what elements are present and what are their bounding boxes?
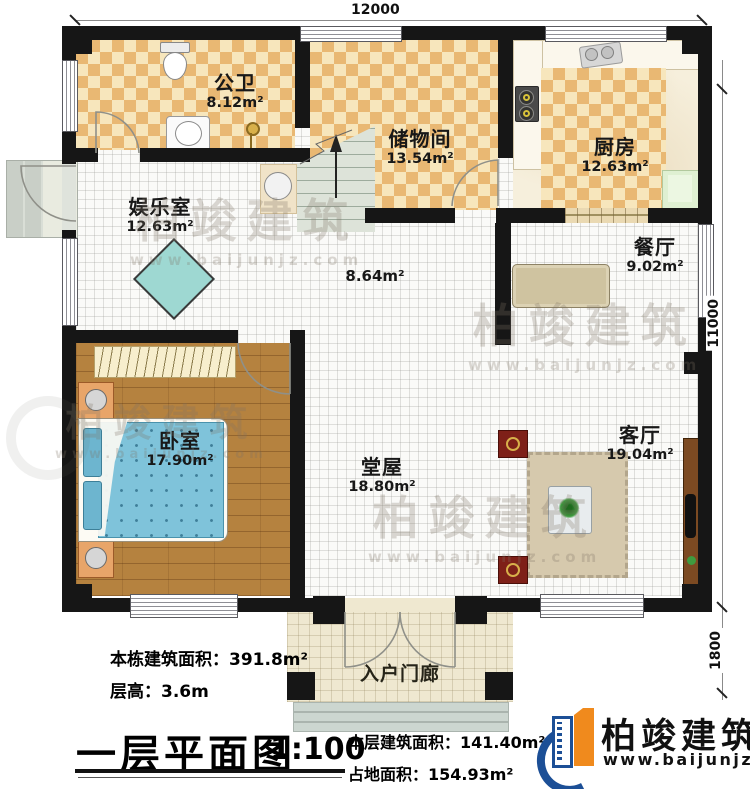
- footprint-area-note: 占地面积：154.93m²: [348, 761, 513, 785]
- floor-plan-canvas: 12000 11000 1800 公卫 8.12m² 储物间 13.54m² 厨…: [0, 0, 750, 789]
- room-label-dining: 餐厅 9.02m²: [600, 236, 710, 276]
- title-underline-thick: [75, 769, 345, 773]
- dimension-label-top: 12000: [348, 2, 403, 18]
- watermark-ring: [6, 396, 90, 480]
- title-underline-thin: [78, 777, 342, 778]
- dimension-label-porch: 1800: [708, 628, 724, 673]
- building-total-area-note: 本栋建筑面积：391.8m²: [110, 645, 308, 670]
- room-label-entry-porch: 入户门廊: [345, 664, 455, 686]
- stairs-direction-arrow: [300, 130, 352, 198]
- door-arc-bathroom: [96, 112, 139, 153]
- door-arc-entry-left: [345, 612, 400, 667]
- room-label-storage: 储物间 13.54m²: [365, 128, 475, 168]
- door-arc-side-porch: [21, 166, 76, 221]
- logo-building-windows: [557, 722, 562, 760]
- room-label-kitchen: 厨房 12.63m²: [560, 136, 670, 176]
- logo-building-orange: [574, 708, 594, 766]
- dimension-label-right: 11000: [706, 296, 722, 351]
- room-label-main-hall: 堂屋 18.80m²: [332, 456, 432, 496]
- brand-logo-icon: [537, 702, 597, 786]
- room-label-public-bath: 公卫 8.12m²: [185, 72, 285, 112]
- floor-area-note: 本层建筑面积：141.40m²: [348, 729, 545, 753]
- door-arc-bedroom: [238, 343, 290, 394]
- brand-logo: 柏竣建筑 www.baijunjz.com: [535, 700, 745, 788]
- hallway-area-label: 8.64m²: [330, 268, 420, 285]
- brand-website: www.baijunjz.com: [603, 750, 750, 769]
- room-label-bedroom: 卧室 17.90m²: [130, 430, 230, 470]
- room-label-living-room: 客厅 19.04m²: [590, 424, 690, 464]
- floor-height-note: 层高：3.6m: [110, 677, 209, 702]
- door-arc-entry-right: [400, 612, 455, 667]
- room-label-entertainment: 娱乐室 12.63m²: [110, 196, 210, 236]
- logo-building-white: [552, 716, 573, 768]
